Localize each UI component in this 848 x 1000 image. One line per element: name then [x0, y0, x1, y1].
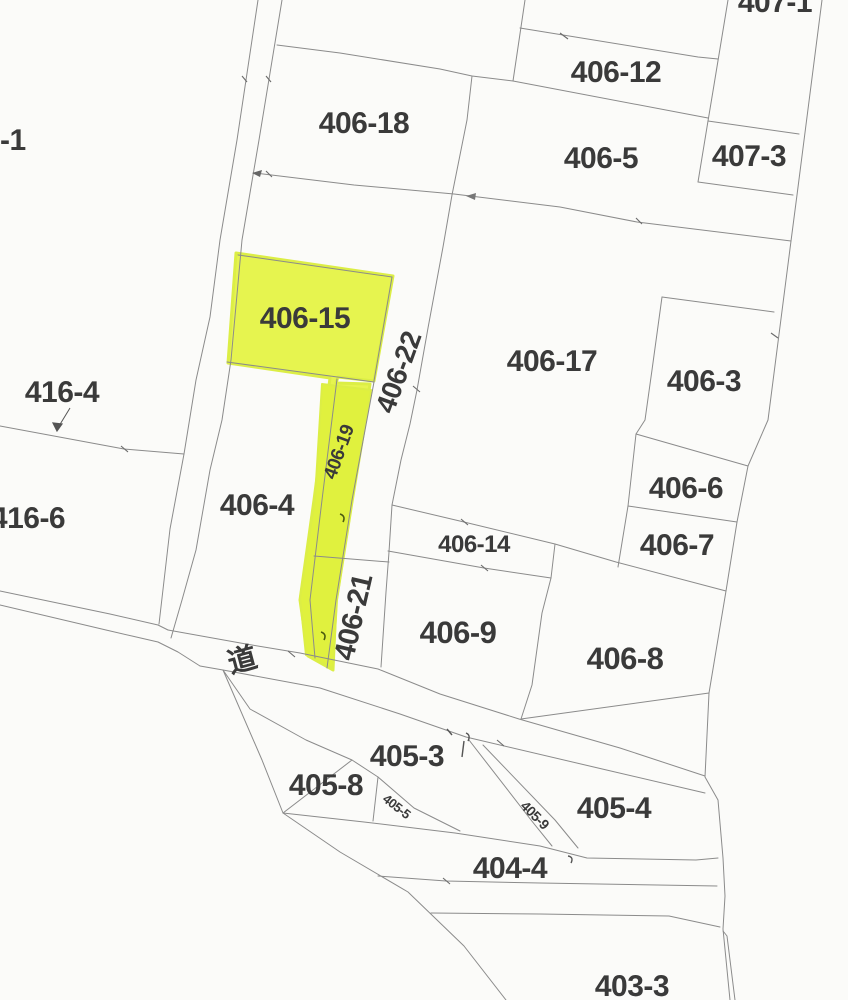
svg-text:403-3: 403-3: [595, 970, 669, 1000]
svg-text:404-4: 404-4: [473, 852, 548, 885]
svg-text:405-4: 405-4: [577, 792, 652, 825]
svg-text:406-14: 406-14: [438, 531, 511, 558]
svg-text:406-3: 406-3: [667, 365, 741, 398]
svg-text:407-1: 407-1: [738, 0, 812, 19]
svg-text:406-8: 406-8: [587, 641, 664, 676]
svg-text:416-4: 416-4: [25, 376, 100, 409]
svg-text:406-17: 406-17: [507, 345, 597, 378]
svg-text:-1: -1: [0, 124, 26, 157]
svg-text:406-4: 406-4: [220, 489, 295, 522]
svg-text:406-12: 406-12: [571, 56, 661, 89]
svg-text:406-18: 406-18: [319, 107, 409, 140]
svg-text:406-5: 406-5: [564, 142, 638, 175]
svg-text:405-3: 405-3: [370, 740, 444, 773]
svg-text:405-8: 405-8: [289, 769, 363, 802]
svg-text:416-6: 416-6: [0, 502, 65, 535]
svg-text:406-9: 406-9: [420, 615, 497, 650]
svg-text:406-6: 406-6: [649, 472, 723, 505]
svg-text:406-15: 406-15: [260, 302, 350, 335]
svg-text:407-3: 407-3: [712, 140, 786, 173]
svg-text:406-7: 406-7: [640, 529, 714, 562]
